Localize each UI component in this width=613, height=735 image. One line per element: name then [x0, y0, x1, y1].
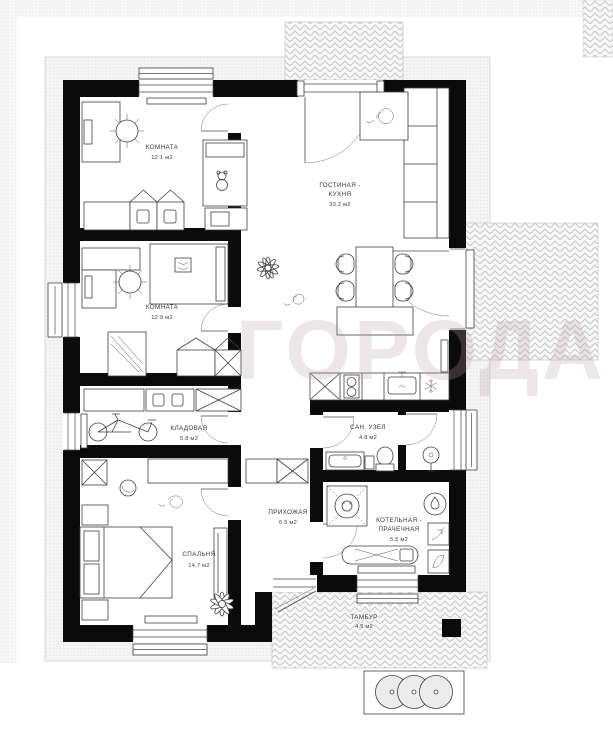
vestibule-area: 4.5 м2: [355, 624, 373, 630]
vestibule-label: ТАМБУР: [350, 614, 377, 621]
boiler-label-1: КОТЕЛЬНАЯ -: [376, 517, 422, 524]
column: [442, 619, 461, 637]
living-label-1: ГОСТИНАЯ -: [319, 182, 360, 189]
console: [214, 528, 227, 598]
toilet: [376, 447, 394, 471]
room2-area: 12.9 м2: [151, 315, 173, 321]
sport-equipment: [108, 332, 146, 376]
boiler: [424, 493, 446, 515]
window-room2-left: [48, 283, 80, 337]
hallway-area: 6.5 м2: [279, 520, 297, 526]
room1-label: КОМНАТА: [146, 144, 179, 151]
bathroom-area: 4.8 м2: [359, 435, 377, 441]
window-laundry-bottom: [357, 575, 418, 603]
terrace-hatch: [465, 223, 598, 360]
window-storage-left: [63, 413, 80, 450]
furniture-hallway: [246, 459, 308, 483]
hallway-label: ПРИХОЖАЯ: [268, 509, 307, 516]
storage-label: КЛАДОВАЯ: [171, 425, 208, 432]
boiler-area: 5.5 м2: [390, 537, 408, 543]
bedroom-label: СПАЛЬНЯ: [182, 551, 215, 558]
living-area: 33.2 м2: [329, 202, 351, 208]
floor-plan-page: КОМНАТА 12.1 м2 ГОСТИНАЯ - КУХНЯ 33.2 м2…: [0, 0, 613, 735]
bathroom-label: САН. УЗЕЛ: [350, 424, 386, 431]
washing-machine: [327, 486, 367, 526]
septic-rings: [364, 671, 464, 714]
bedroom-area: 14.7 м2: [188, 563, 210, 569]
floor-plan-drawing: КОМНАТА 12.1 м2 ГОСТИНАЯ - КУХНЯ 33.2 м2…: [0, 0, 613, 735]
bed-room2: [150, 244, 228, 304]
room2-label: КОМНАТА: [146, 304, 179, 311]
coffee-table-with-cat: [360, 92, 408, 140]
window-bedroom-bottom: [133, 625, 207, 655]
window-bathroom-right: [449, 410, 477, 470]
boiler-label-2: ПРАЧЕЧНАЯ: [378, 526, 419, 533]
sofa: [404, 88, 449, 238]
ironing-board: [342, 546, 418, 564]
storage-area: 5.8 м2: [180, 436, 198, 442]
kitchen-island: [337, 307, 413, 335]
room1-area: 12.1 м2: [151, 155, 173, 161]
front-porch-hatch: [285, 22, 403, 80]
window-room1-top: [139, 68, 213, 97]
living-label-2: КУХНЯ: [329, 191, 352, 198]
kitchen-counter: [310, 372, 449, 400]
